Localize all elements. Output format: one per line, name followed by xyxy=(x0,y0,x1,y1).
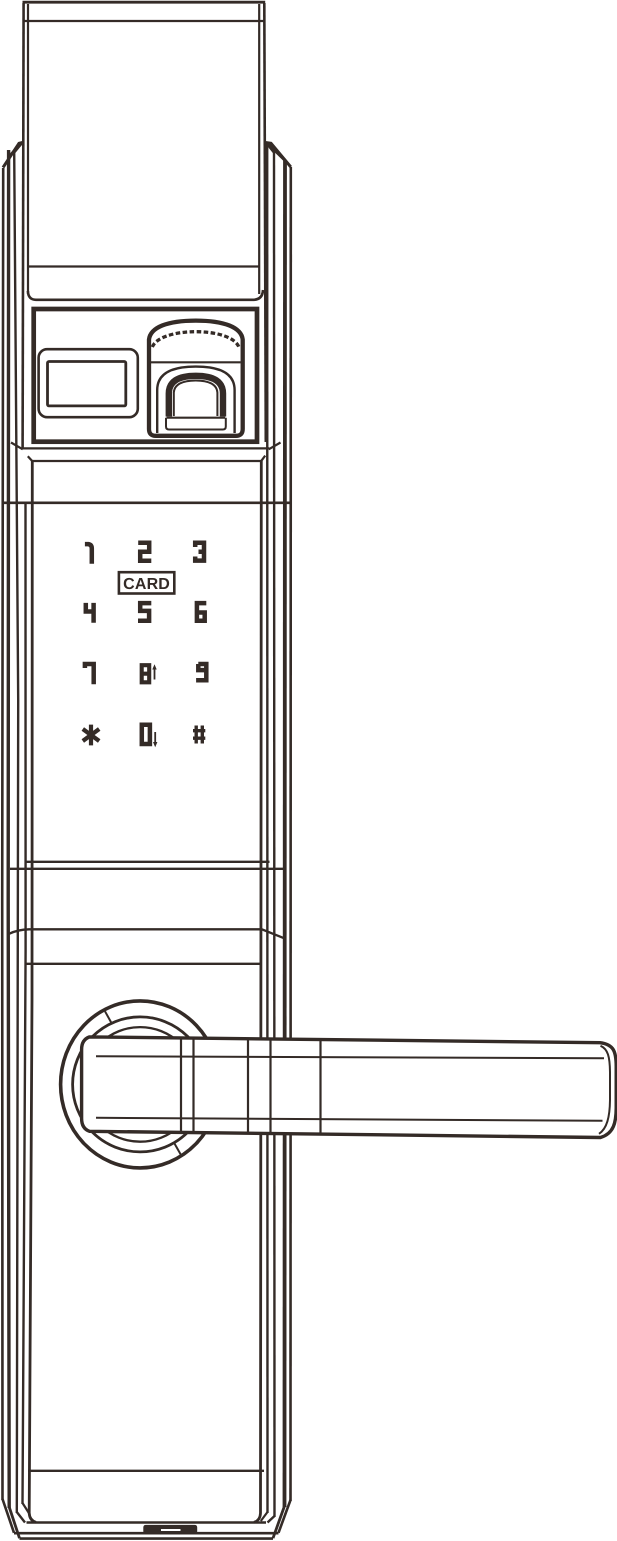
svg-text:CARD: CARD xyxy=(123,576,170,593)
